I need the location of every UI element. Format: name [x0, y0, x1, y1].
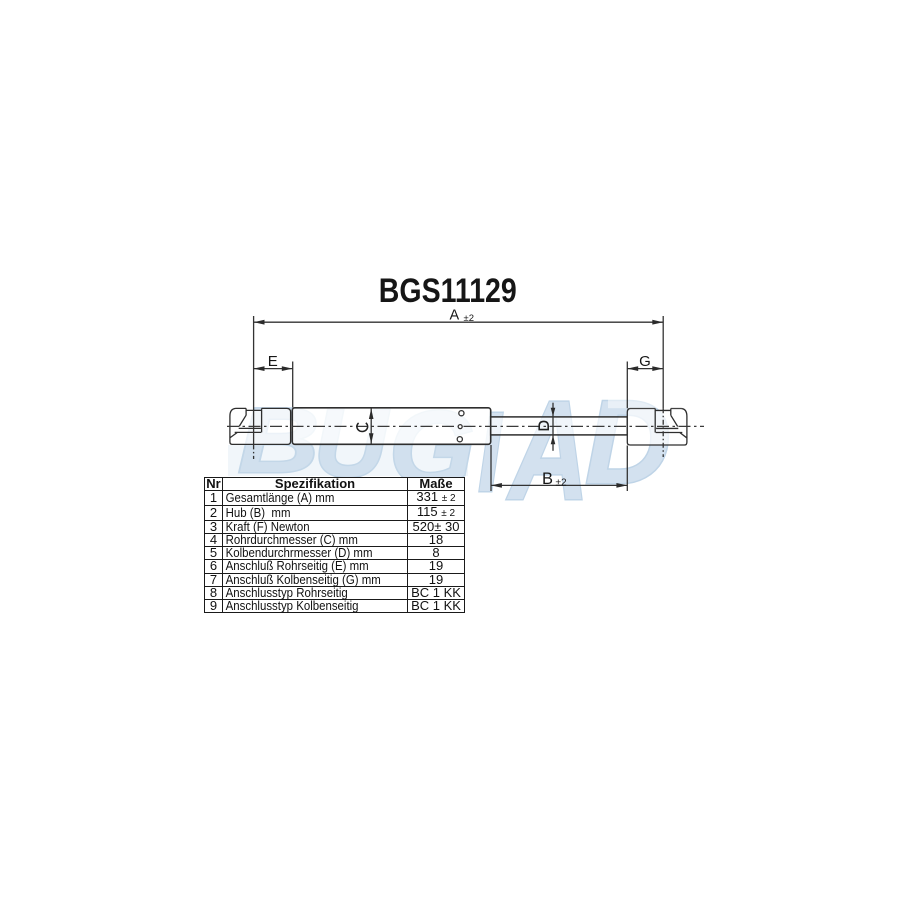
svg-text:±2: ±2 — [464, 313, 475, 324]
svg-text:G: G — [639, 353, 651, 370]
svg-text:B: B — [542, 470, 553, 488]
svg-text:A: A — [450, 308, 460, 324]
svg-text:E: E — [268, 353, 278, 370]
svg-text:±2: ±2 — [556, 478, 567, 489]
svg-text:BGS11129: BGS11129 — [379, 272, 517, 310]
svg-text:A: A — [507, 371, 590, 529]
